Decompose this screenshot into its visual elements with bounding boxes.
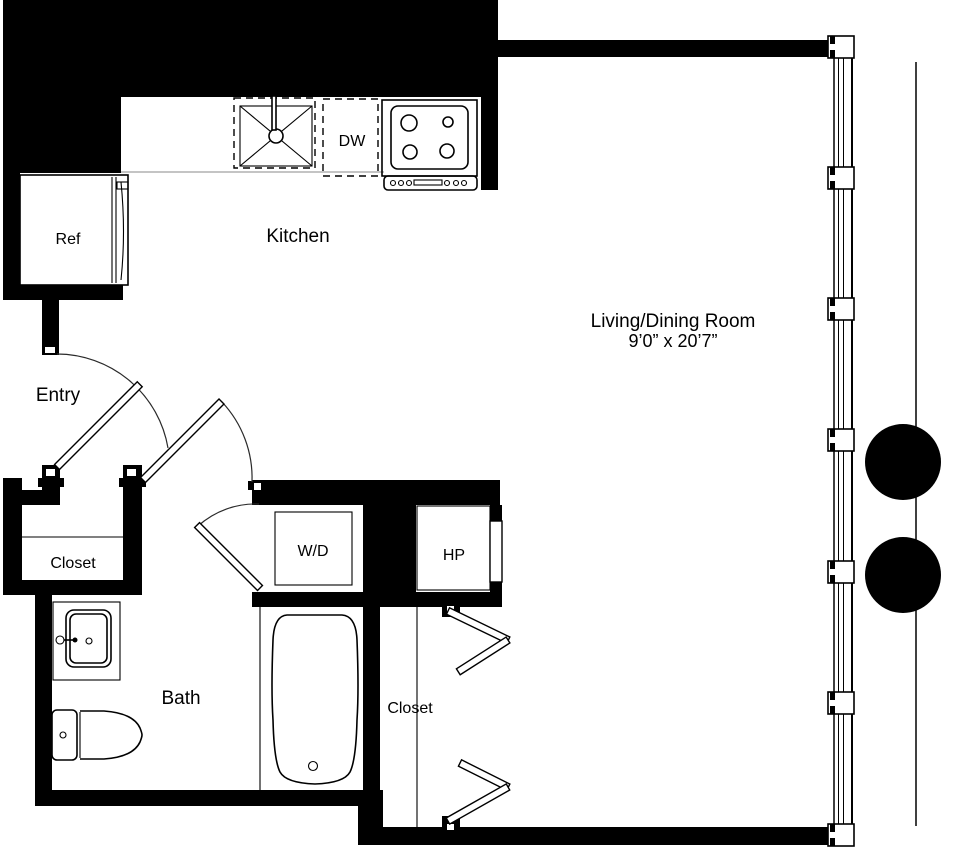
refrigerator-label: Ref [56,231,81,248]
column [865,537,941,613]
entry-label: Entry [36,385,81,406]
kitchen-label: Kitchen [266,226,329,247]
walls [3,0,835,845]
dishwasher-label: DW [339,133,367,150]
bath-label: Bath [161,688,200,709]
bathroom-sink [53,602,120,680]
column [865,424,941,500]
interior-door-swing [141,399,253,482]
stove [382,100,477,190]
window-mullion-joints [828,36,854,846]
toilet [52,710,142,760]
washer-dryer-label: W/D [297,543,328,560]
bifold-door-top [446,608,509,675]
kitchen-sink [234,86,315,168]
window-wall [828,36,854,846]
living-closet-label: Closet [387,700,433,717]
living-dining-label: Living/Dining Room [591,311,756,332]
heat-pump-label: HP [443,547,465,564]
bathroom-door-swing [195,504,263,591]
bifold-door-bottom [446,760,510,824]
refrigerator [20,175,128,285]
bathtub [260,605,358,790]
hp-closet-door [490,521,502,582]
entry-closet-label: Closet [50,555,96,572]
floor-plan: Kitchen Living/Dining Room 9’0” x 20’7” … [0,0,966,863]
living-dining-dimensions: 9’0” x 20’7” [628,331,717,351]
entry-door-swing [55,354,168,469]
floor-plan-canvas: Kitchen Living/Dining Room 9’0” x 20’7” … [0,0,966,863]
